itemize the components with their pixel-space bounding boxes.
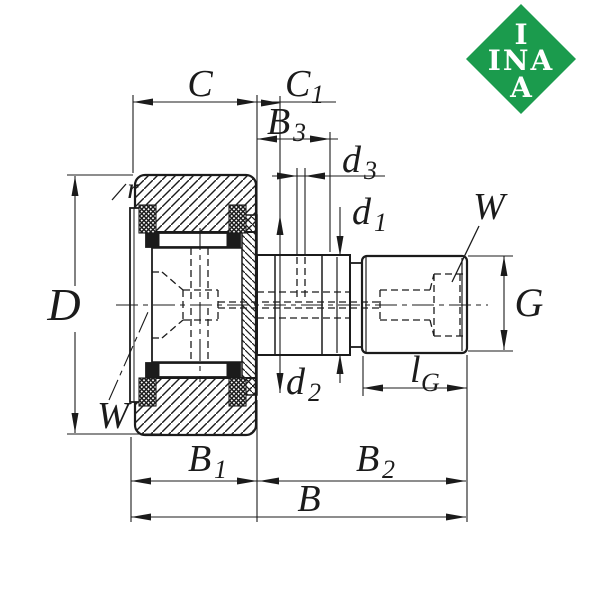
label-d2-base: d <box>286 361 306 403</box>
label-W-right: W <box>473 186 508 228</box>
arrow-B3-right <box>310 136 330 143</box>
arrow-B2-right <box>446 478 466 485</box>
arrow-B-right <box>446 514 466 521</box>
label-B2-sub: 2 <box>382 455 395 484</box>
arrow-d1-top <box>337 236 344 256</box>
arrow-C-left <box>133 99 153 106</box>
label-D: D <box>46 279 80 330</box>
arrow-d2-top <box>277 215 284 235</box>
label-G: G <box>515 280 544 325</box>
label-B1-sub: 1 <box>214 455 227 484</box>
arrow-G-top <box>501 256 508 276</box>
label-C: C <box>187 63 213 105</box>
seal-top-left <box>139 205 156 233</box>
label-d2-sub: 2 <box>308 378 321 407</box>
label-d3-base: d <box>342 139 362 181</box>
ina-logo-bottom-letter: A <box>509 71 533 104</box>
label-d3-sub: 3 <box>363 156 377 185</box>
label-W-left: W <box>97 395 132 437</box>
label-B1-base: B <box>188 438 211 480</box>
arrow-B2-left <box>259 478 279 485</box>
seal-bottom-left <box>139 378 156 406</box>
label-r: r <box>127 172 139 205</box>
label-d1-sub: 1 <box>374 208 387 237</box>
cam-follower-drawing: I INA A <box>0 0 600 600</box>
seal-top-right <box>229 205 246 233</box>
arrow-C-right <box>237 99 257 106</box>
left-socket-cone-bottom <box>162 320 183 338</box>
arrow-B1-left <box>131 478 151 485</box>
arrow-D-top <box>72 176 79 196</box>
arrow-D-bottom <box>72 413 79 433</box>
label-lG-base: l <box>410 349 421 391</box>
arrow-G-bottom <box>501 330 508 350</box>
arrow-d1-bottom <box>337 354 344 374</box>
label-C1-sub: 1 <box>311 80 324 109</box>
roller-row-bottom <box>146 363 240 377</box>
label-B: B <box>297 478 320 520</box>
r-leader <box>112 184 126 200</box>
ina-logo: I INA A <box>466 4 576 114</box>
roller-cage-top-left <box>147 233 159 247</box>
stud <box>257 255 467 355</box>
arrow-d3-left <box>277 173 297 180</box>
arrow-d2-bottom <box>277 373 284 393</box>
arrow-d3-right <box>305 173 325 180</box>
label-B3-base: B <box>267 101 290 143</box>
roller-row-top <box>146 233 240 247</box>
roller-cage-top-right <box>227 233 239 247</box>
roller-cage-bottom-left <box>147 363 159 377</box>
seal-bottom-right <box>229 378 246 406</box>
technical-drawing-page: I INA A <box>0 0 600 600</box>
left-socket-cone-top <box>162 272 183 290</box>
arrow-B-left <box>131 514 151 521</box>
label-C1-base: C <box>285 63 311 105</box>
arrow-lG-right <box>447 385 467 392</box>
label-d1-base: d <box>352 191 372 233</box>
arrow-lG-left <box>363 385 383 392</box>
roller-cage-bottom-right <box>227 363 239 377</box>
label-lG-sub: G <box>421 368 440 397</box>
arrow-B1-right <box>237 478 257 485</box>
label-B3-sub: 3 <box>292 118 306 147</box>
label-B2-base: B <box>356 438 379 480</box>
